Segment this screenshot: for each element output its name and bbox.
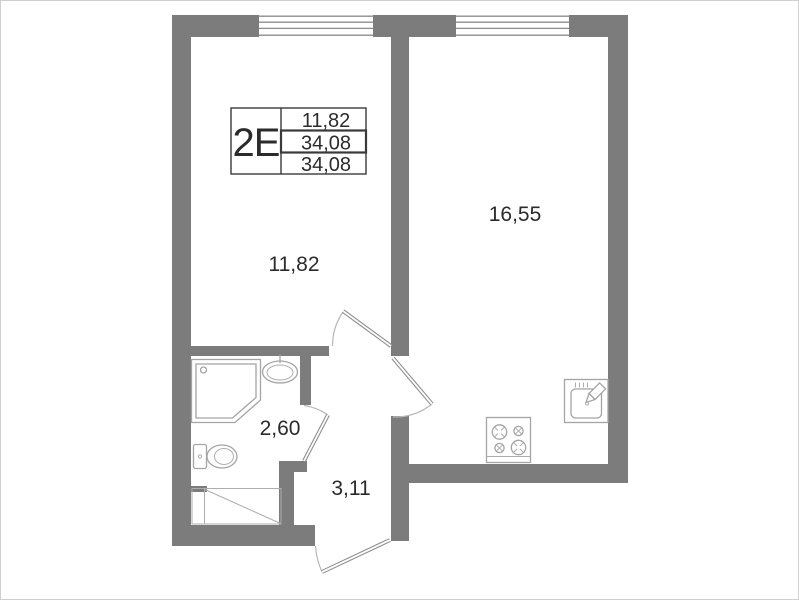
center-wall-lower [391,416,409,541]
area-label-hallway: 3,11 [331,477,370,500]
kitchen-bottom-wall [409,464,628,483]
burner-small-bl [495,443,504,452]
shower-cabin [192,360,261,423]
interior-walls [191,37,409,541]
washing-niche [192,489,281,525]
left-wall [172,15,191,546]
toilet-button [198,455,201,458]
title-block-value-1: 11,82 [302,110,351,132]
door-entrance [316,540,391,572]
kitchen-sink [565,380,609,423]
floor-plan: 11,82 16,55 2,60 3,11 2E 11,82 34,08 34,… [1,1,798,599]
window-left [259,16,373,35]
door-leaf [322,540,390,572]
door-bathroom [304,406,328,462]
window-right [456,16,569,35]
top-wall-middle-segment [373,15,456,37]
floor-plan-canvas: 11,82 16,55 2,60 3,11 2E 11,82 34,08 34,… [0,0,799,600]
washbasin [263,355,298,384]
burner-large-br [511,440,525,454]
center-wall-upper [391,37,409,356]
toilet [194,445,238,469]
burner-small-tr [514,426,523,435]
stove-body [487,418,531,463]
door-swing-arc [316,546,323,572]
area-label-kitchen-living: 16,55 [489,203,542,226]
toilet-tank [194,445,207,469]
shower-drain [201,367,207,373]
apartment-type-label: 2E [233,121,280,165]
bottom-wall-left [172,525,315,546]
door-leaf [393,358,432,404]
niche-outline [192,489,281,525]
door-kitchen-living [393,358,432,417]
door-swing-arc [393,404,432,417]
door-leaf [343,311,391,346]
toilet-bowl-inner [215,449,234,465]
title-block-value-3: 34,08 [301,154,351,176]
washbasin-inner [267,365,293,380]
title-block: 2E 11,82 34,08 34,08 [231,108,366,176]
right-wall [608,15,628,483]
sink-faucet-dot [586,402,589,405]
area-label-bathroom: 2,60 [260,417,301,440]
burner-large-tl [492,425,506,439]
door-living-room [332,311,391,346]
shower-outer [192,360,261,423]
area-label-living-room: 11,82 [269,253,320,276]
hallway-corner-wall-h [279,461,307,472]
stove [487,418,531,463]
bathroom-top-wall [191,346,329,356]
bathroom-right-wall [300,356,311,405]
door-leaf [304,415,328,461]
door-swing-arc [332,312,343,346]
title-block-value-2: 34,08 [301,133,351,155]
niche-diagonal [205,490,281,524]
door-swing-arc [304,406,328,416]
